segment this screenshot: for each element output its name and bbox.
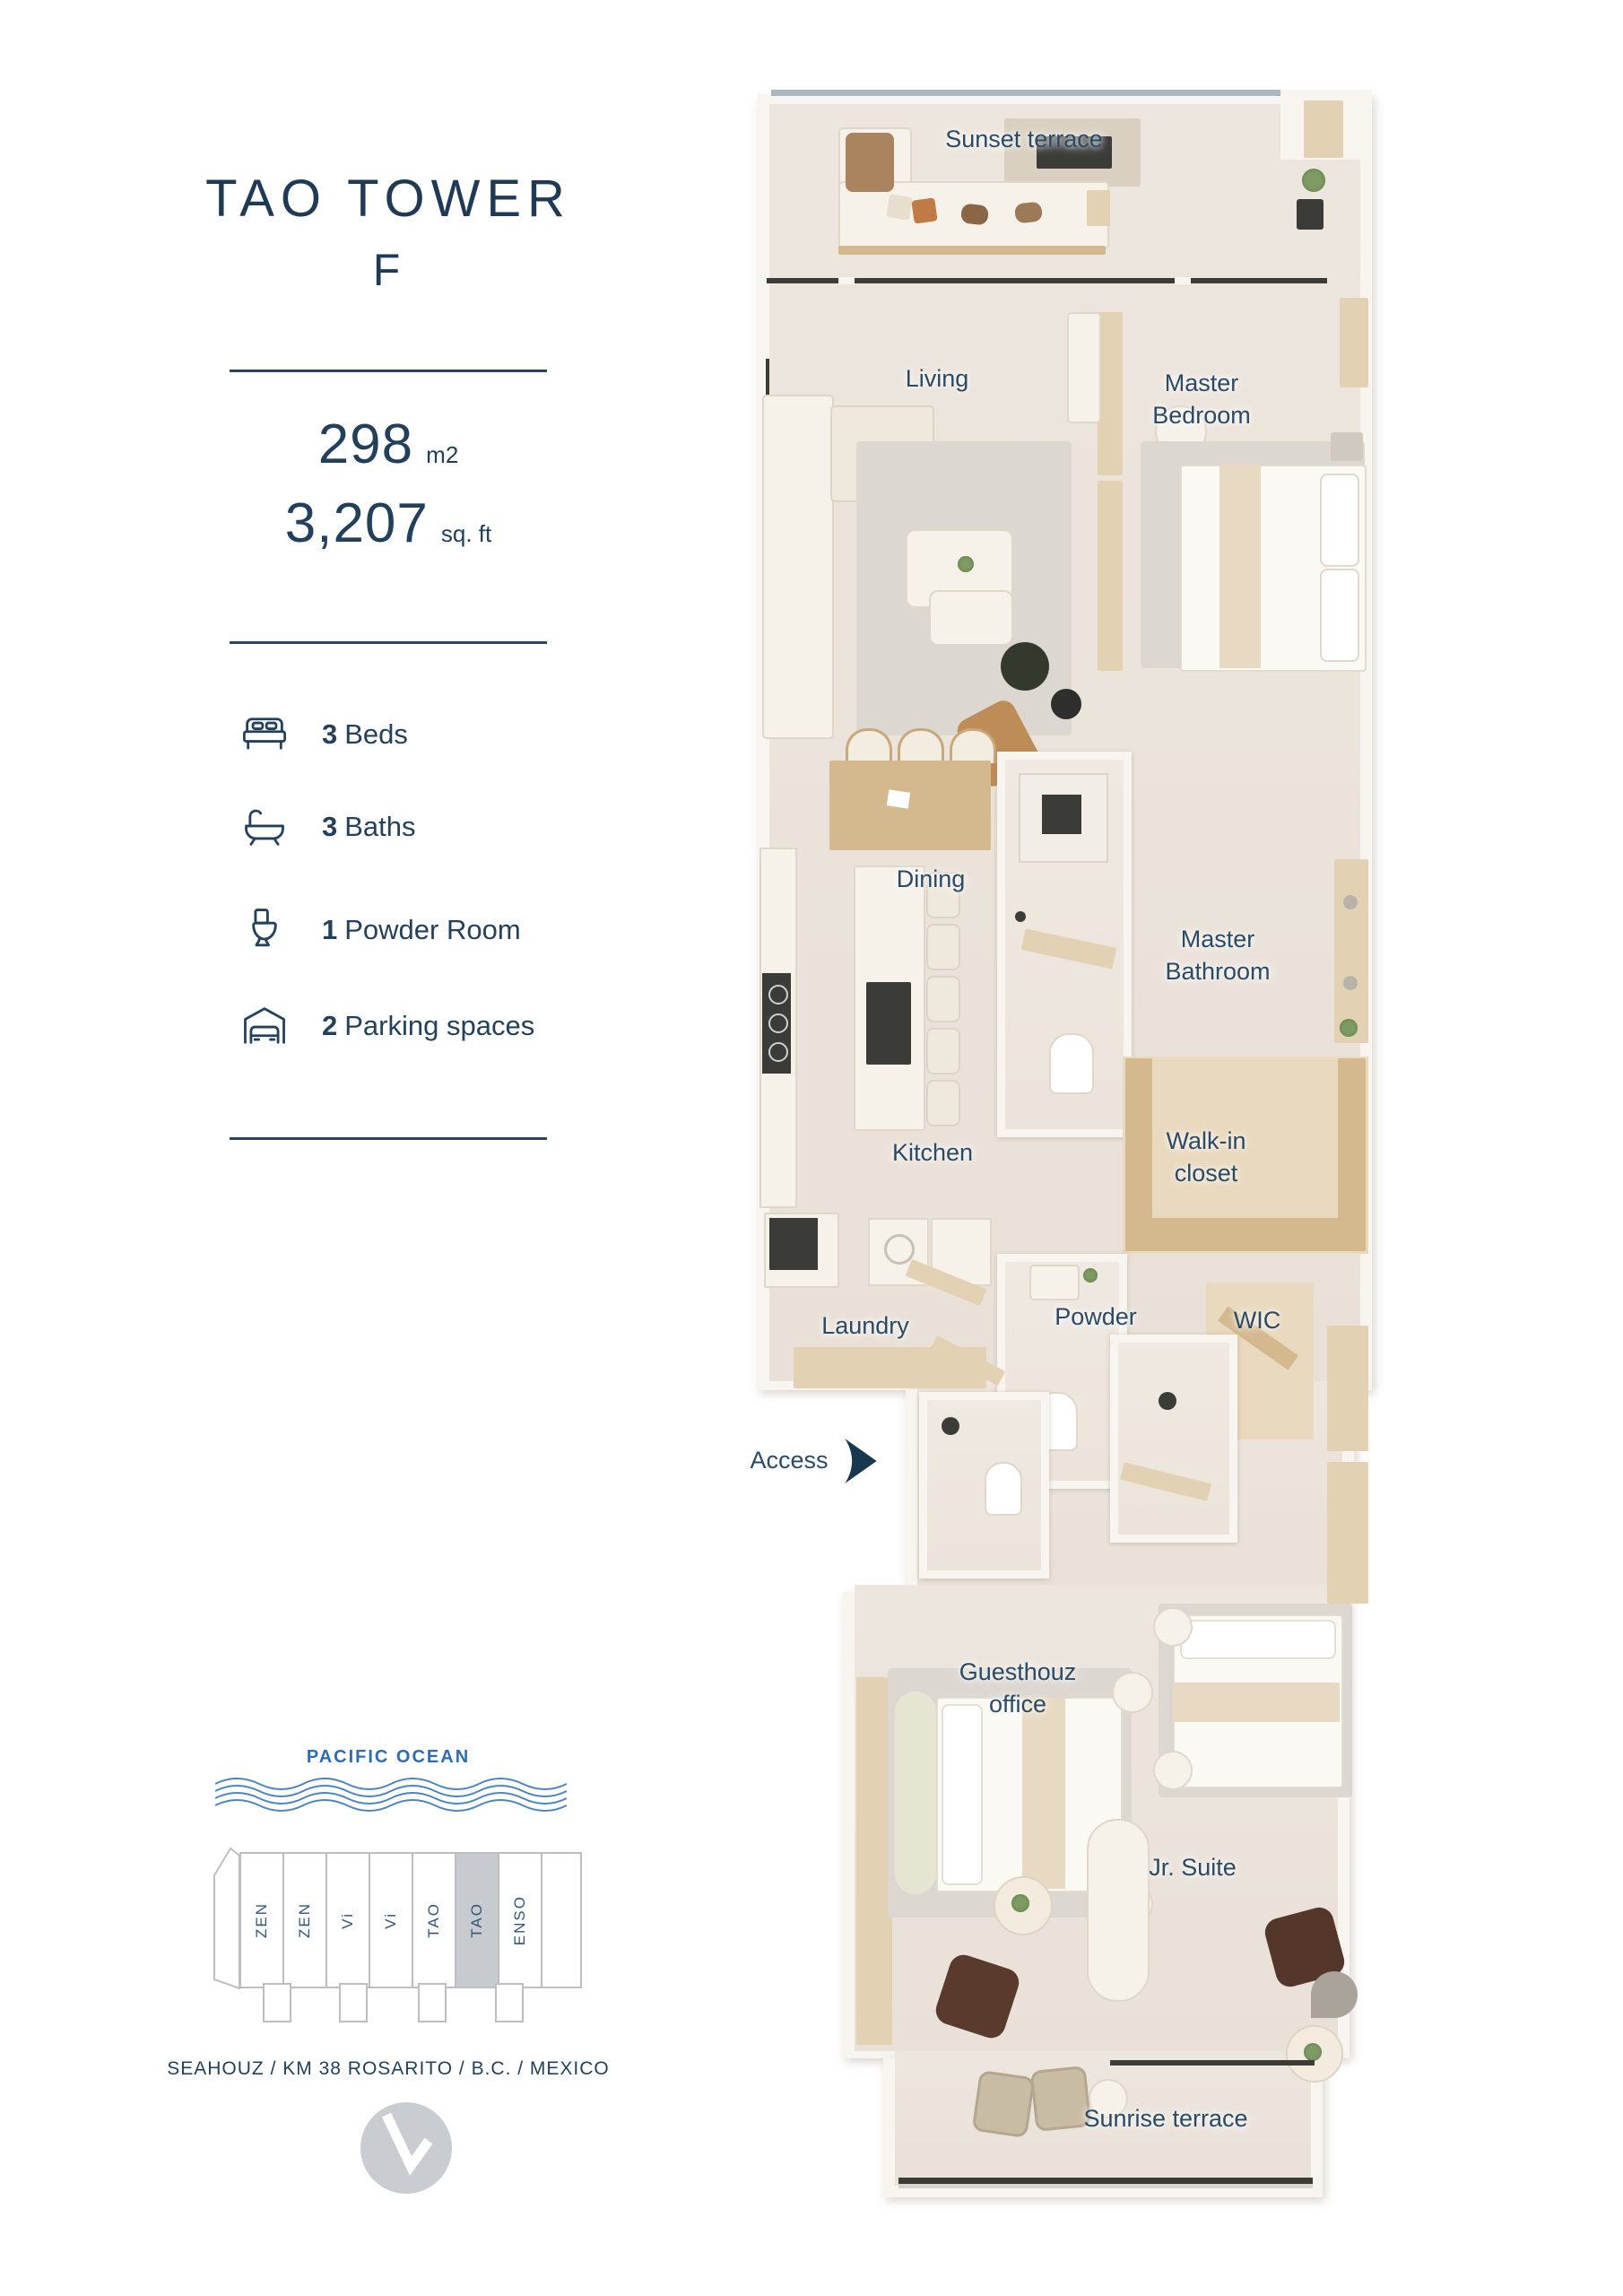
floor-plan: Sunset terrace Living Master Bedroom Din… [753, 90, 1381, 2215]
unit-letter: F [164, 244, 612, 296]
guest-bath-2 [1110, 1335, 1237, 1543]
side-table [1112, 1672, 1153, 1713]
area-imperial-unit: sq. ft [441, 520, 491, 548]
powder-count: 1 [322, 914, 337, 945]
bar-stool [926, 976, 960, 1022]
pillow [911, 197, 937, 223]
area-metric-value: 298 [318, 413, 413, 476]
guest-wardrobe [856, 1677, 892, 2045]
burner [768, 985, 788, 1004]
master-vanity [1334, 859, 1368, 1043]
site-core [263, 1983, 291, 2022]
fan-chair [1311, 1971, 1358, 2018]
plant [1011, 1894, 1029, 1912]
page-title: TAO TOWER [164, 169, 612, 229]
divider-bottom [230, 1137, 547, 1140]
terrace-rail [898, 2178, 1313, 2184]
dining-table [829, 761, 991, 850]
plant [958, 556, 974, 572]
baths-label: Baths [344, 811, 415, 842]
tower-label: Vi [339, 1912, 357, 1929]
label-sunset-terrace: Sunset terrace [945, 123, 1103, 155]
area-metric-unit: m2 [426, 441, 458, 469]
plant [1083, 1268, 1098, 1283]
tower-label: Vi [382, 1912, 400, 1929]
tower-label: ENSO [511, 1895, 529, 1945]
beds-label: Beds [344, 718, 408, 750]
pouf-dark-green [1001, 642, 1049, 691]
tv-wardrobe [1098, 312, 1123, 475]
shower-head [1159, 1392, 1176, 1410]
label-dining: Dining [897, 863, 966, 895]
tower-label: TAO [468, 1902, 486, 1938]
label-walkin-closet: Walk-in closet [1143, 1125, 1269, 1189]
side-table [1153, 1607, 1193, 1647]
label-master-bathroom: Master Bathroom [1128, 923, 1307, 987]
beds-count: 3 [322, 718, 337, 750]
bar-stool [926, 924, 960, 970]
laundry-sink [769, 1218, 818, 1270]
terrace-glass-rail [771, 90, 1350, 96]
guest-headboard [895, 1692, 936, 1894]
tower-block-2: Vi [325, 1852, 370, 1988]
pouf-black [1051, 689, 1081, 719]
site-core [495, 1983, 524, 2022]
bed-runner [1219, 465, 1261, 668]
toilet [985, 1462, 1022, 1516]
tower-label: ZEN [253, 1902, 271, 1938]
dining-chair [950, 728, 996, 763]
wardrobe [1338, 1058, 1366, 1251]
bed-pillow [1320, 569, 1359, 662]
bed-pillow [1320, 474, 1359, 567]
pillow [886, 194, 913, 221]
garage-icon [239, 1001, 290, 1051]
toilet-icon [239, 905, 290, 955]
address-line: SEAHOUZ / KM 38 ROSARITO / B.C. / MEXICO [110, 2058, 666, 2080]
door-jamb [838, 277, 855, 284]
plant [1304, 2043, 1322, 2061]
parking-count: 2 [322, 1010, 337, 1041]
label-access: Access [750, 1444, 828, 1476]
lounge-chair [1087, 1819, 1150, 2002]
plant [1302, 169, 1325, 192]
burner [768, 1013, 788, 1033]
closet [1327, 1462, 1368, 1604]
outdoor-table [1297, 199, 1324, 230]
tower-block-3: Vi [369, 1852, 413, 1988]
dining-chair [846, 728, 892, 763]
baths-count: 3 [322, 811, 337, 842]
table-decor [887, 789, 910, 808]
seahouz-logo [357, 2099, 456, 2197]
terrace-side-table [1087, 190, 1110, 226]
bed-runner [1173, 1683, 1340, 1722]
tower-block-0: ZEN [239, 1852, 284, 1988]
pillow [960, 203, 989, 225]
feature-baths-text: 3Baths [322, 811, 416, 843]
site-plan-end-piece [213, 1847, 241, 1990]
terrace-rail-shadow [898, 2184, 1313, 2188]
coffee-table-2 [929, 590, 1013, 646]
area-metric: 298 m2 [164, 413, 612, 476]
bed-icon [239, 709, 290, 760]
washer-door [884, 1234, 915, 1265]
label-jr-suite: Jr. Suite [1149, 1851, 1237, 1883]
parking-label: Parking spaces [344, 1010, 534, 1041]
closet [1327, 1326, 1368, 1451]
feature-powder: 1Powder Room [239, 904, 521, 956]
label-guesthouz-office: Guesthouz office [928, 1656, 1107, 1720]
divider-top [230, 370, 547, 372]
side-table [1153, 1751, 1193, 1790]
wardrobe [1125, 1218, 1366, 1251]
terrace-sofa-base [838, 246, 1106, 255]
outdoor-shelf [1304, 100, 1343, 158]
toilet [1049, 1033, 1094, 1094]
label-living: Living [906, 362, 969, 395]
site-core [339, 1983, 368, 2022]
powder-sink [1029, 1265, 1080, 1300]
site-core [418, 1983, 447, 2022]
label-laundry: Laundry [821, 1309, 909, 1342]
feature-beds: 3Beds [239, 709, 408, 761]
sink [1343, 895, 1358, 909]
label-kitchen: Kitchen [892, 1136, 973, 1169]
tower-block-4: TAO [412, 1852, 456, 1988]
plant [1340, 1019, 1358, 1037]
tower-block-6: ENSO [498, 1852, 542, 1988]
terrace-chair [972, 2070, 1036, 2138]
bed-pillow [1180, 1620, 1336, 1659]
bed-runner [1022, 1697, 1065, 1889]
tower-block-5: TAO [455, 1852, 499, 1988]
cabinet [1067, 312, 1101, 423]
shower-tray [1042, 795, 1081, 834]
access-arrow-icon [841, 1437, 881, 1485]
tower-block-1: ZEN [282, 1852, 327, 1988]
tower-label: TAO [425, 1902, 443, 1938]
hall-vanity [1340, 298, 1368, 387]
shower-head [942, 1417, 959, 1435]
site-plan: ZEN ZEN Vi Vi TAO TAO ENSO [213, 1852, 582, 1985]
label-master-bedroom: Master Bedroom [1121, 367, 1282, 431]
tower-block-edge [541, 1852, 582, 1988]
bathtub-icon [239, 802, 290, 852]
door-jamb [1175, 277, 1191, 284]
feature-powder-text: 1Powder Room [322, 914, 521, 946]
tv-wardrobe [1098, 481, 1123, 671]
divider-mid [230, 641, 547, 644]
terrace-chair [1030, 2066, 1092, 2132]
feature-beds-text: 3Beds [322, 718, 408, 751]
label-powder: Powder [1055, 1300, 1137, 1333]
feature-parking-text: 2Parking spaces [322, 1010, 534, 1042]
sink [1343, 976, 1358, 990]
island-sink [866, 982, 911, 1065]
label-sunrise-terrace: Sunrise terrace [1083, 2102, 1247, 2135]
bar-stool [926, 1080, 960, 1126]
sliding-door [1110, 2060, 1315, 2066]
bar-stool [926, 1028, 960, 1074]
tower-label: ZEN [296, 1902, 314, 1938]
feature-baths: 3Baths [239, 801, 416, 853]
area-imperial: 3,207 sq. ft [164, 491, 612, 555]
area-imperial-value: 3,207 [285, 491, 429, 555]
living-sofa [762, 395, 834, 739]
throw-blanket [846, 133, 894, 192]
feature-parking: 2Parking spaces [239, 1000, 534, 1052]
ocean-label: PACIFIC OCEAN [164, 1747, 612, 1768]
ocean-waves [215, 1778, 570, 1813]
powder-label: Powder Room [344, 914, 520, 945]
label-wic: WIC [1234, 1304, 1280, 1336]
dining-chair [898, 728, 944, 763]
bed-pillow [942, 1704, 983, 1885]
nightstand [1331, 432, 1363, 461]
faucet [1015, 911, 1026, 922]
burner [768, 1042, 788, 1062]
